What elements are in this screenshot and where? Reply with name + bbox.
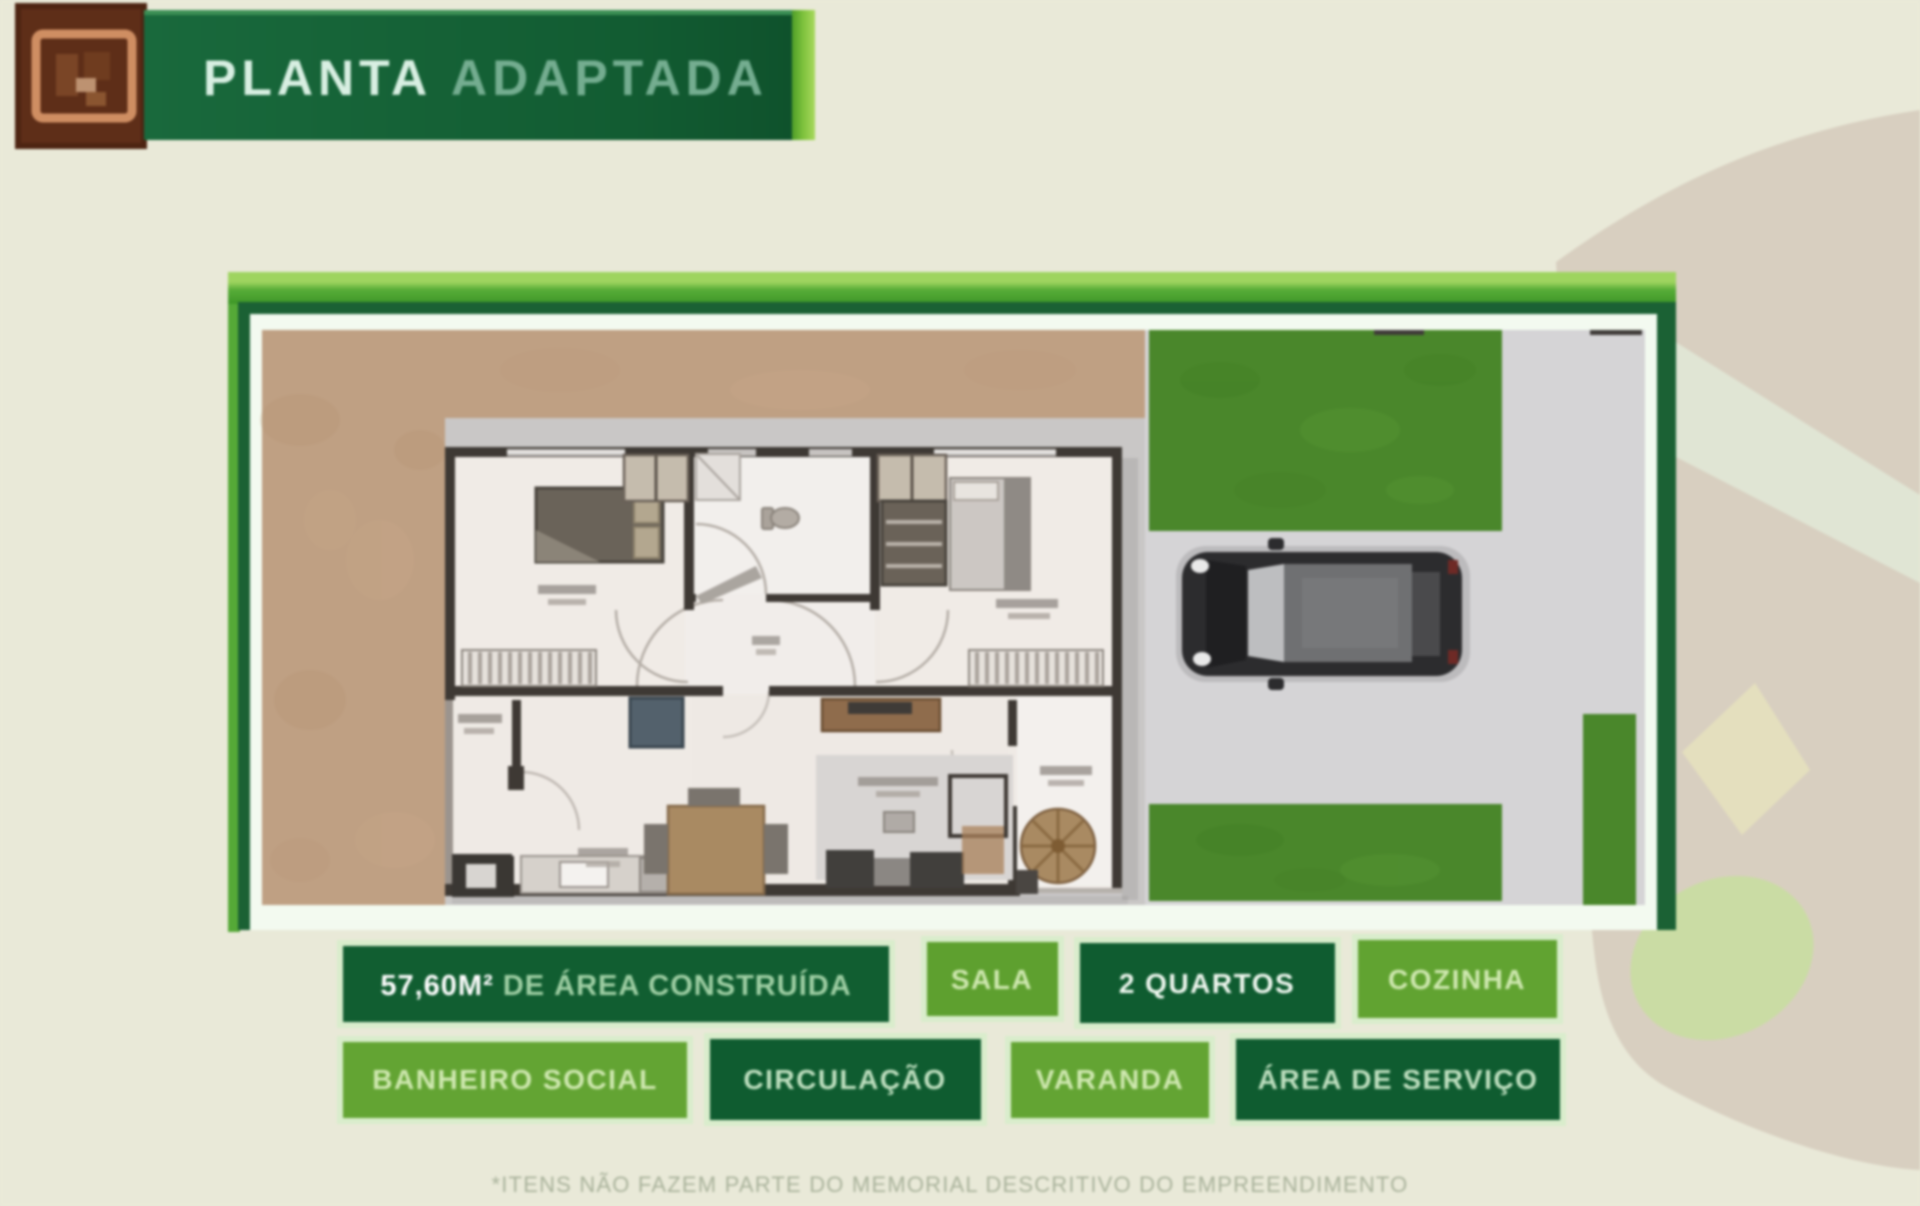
- svg-text:ÁREA DE SERVIÇO: ÁREA DE SERVIÇO: [1258, 1064, 1539, 1095]
- svg-text:57,60M² DE ÁREA CONSTRUÍDA: 57,60M² DE ÁREA CONSTRUÍDA: [380, 968, 851, 1002]
- svg-text:ADAPTADA: ADAPTADA: [451, 50, 768, 106]
- svg-text:BANHEIRO SOCIAL: BANHEIRO SOCIAL: [372, 1064, 657, 1095]
- svg-text:COZINHA: COZINHA: [1388, 964, 1526, 995]
- svg-text:CIRCULAÇÃO: CIRCULAÇÃO: [743, 1064, 946, 1095]
- svg-text:2 QUARTOS: 2 QUARTOS: [1119, 968, 1295, 999]
- svg-text:SALA: SALA: [951, 964, 1033, 995]
- svg-text:*ITENS NÃO FAZEM PARTE DO MEMO: *ITENS NÃO FAZEM PARTE DO MEMORIAL DESCR…: [491, 1172, 1408, 1197]
- svg-text:PLANTA: PLANTA: [203, 50, 432, 106]
- svg-text:VARANDA: VARANDA: [1036, 1064, 1184, 1095]
